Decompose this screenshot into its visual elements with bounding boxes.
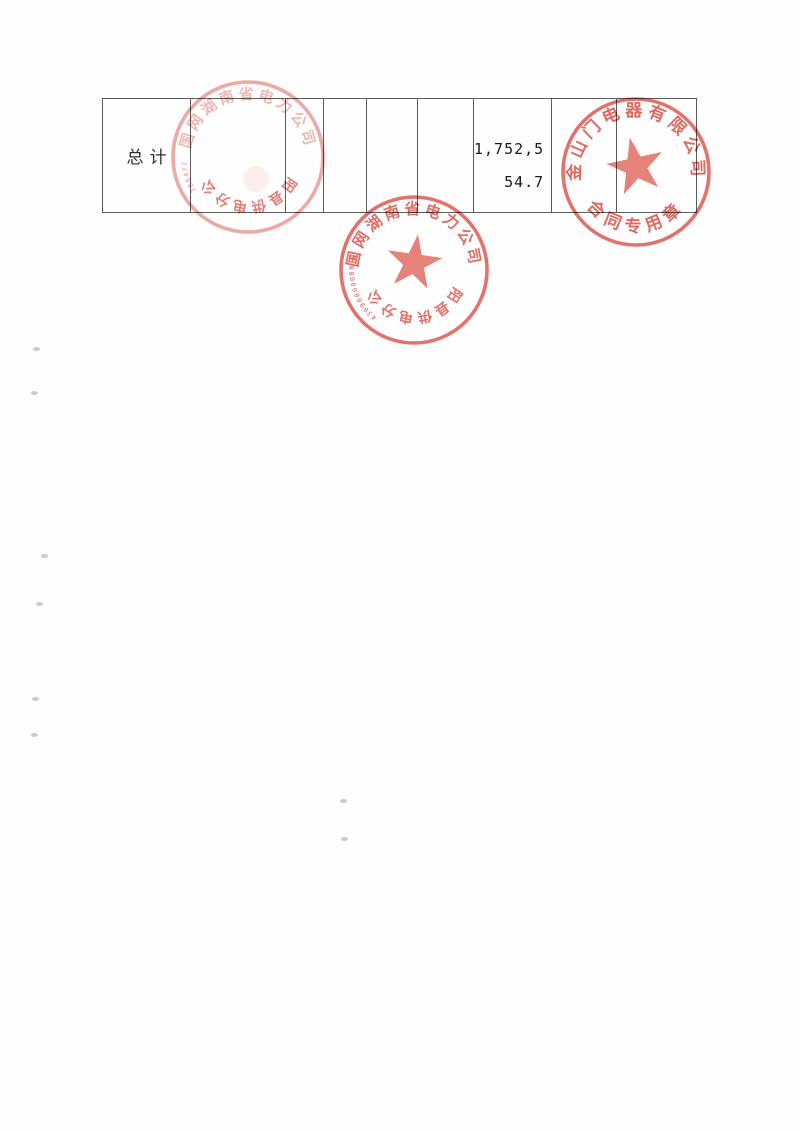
scan-speck (41, 554, 48, 558)
total-amount-line-2: 54.7 (474, 166, 544, 199)
total-amount-line-1: 1,752,5 (474, 133, 544, 166)
scan-speck (32, 697, 39, 701)
summary-table: 总计 1,752,5 54.7 (102, 98, 697, 213)
scan-speck (31, 391, 38, 395)
empty-cell-5 (418, 99, 474, 212)
empty-cell-3 (324, 99, 367, 212)
empty-cell-1 (191, 99, 286, 212)
scan-speck (36, 602, 43, 606)
scanned-document-page: 总计 1,752,5 54.7 国网湖南省电力公司桂阳县供电分公司380472国… (0, 0, 800, 1131)
empty-cell-4 (367, 99, 418, 212)
scan-speck (31, 733, 38, 737)
scan-speck (341, 837, 348, 841)
total-amount-cell: 1,752,5 54.7 (474, 99, 552, 212)
total-label: 总计 (127, 143, 173, 168)
total-label-cell: 总计 (103, 99, 191, 212)
seal-star-icon (383, 230, 445, 290)
empty-cell-7 (617, 99, 701, 212)
scan-speck (33, 347, 40, 351)
empty-cell-2 (286, 99, 324, 212)
scan-speck (340, 799, 347, 803)
empty-cell-6 (552, 99, 617, 212)
svg-text:4309000000813: 4309000000813 (348, 252, 378, 321)
